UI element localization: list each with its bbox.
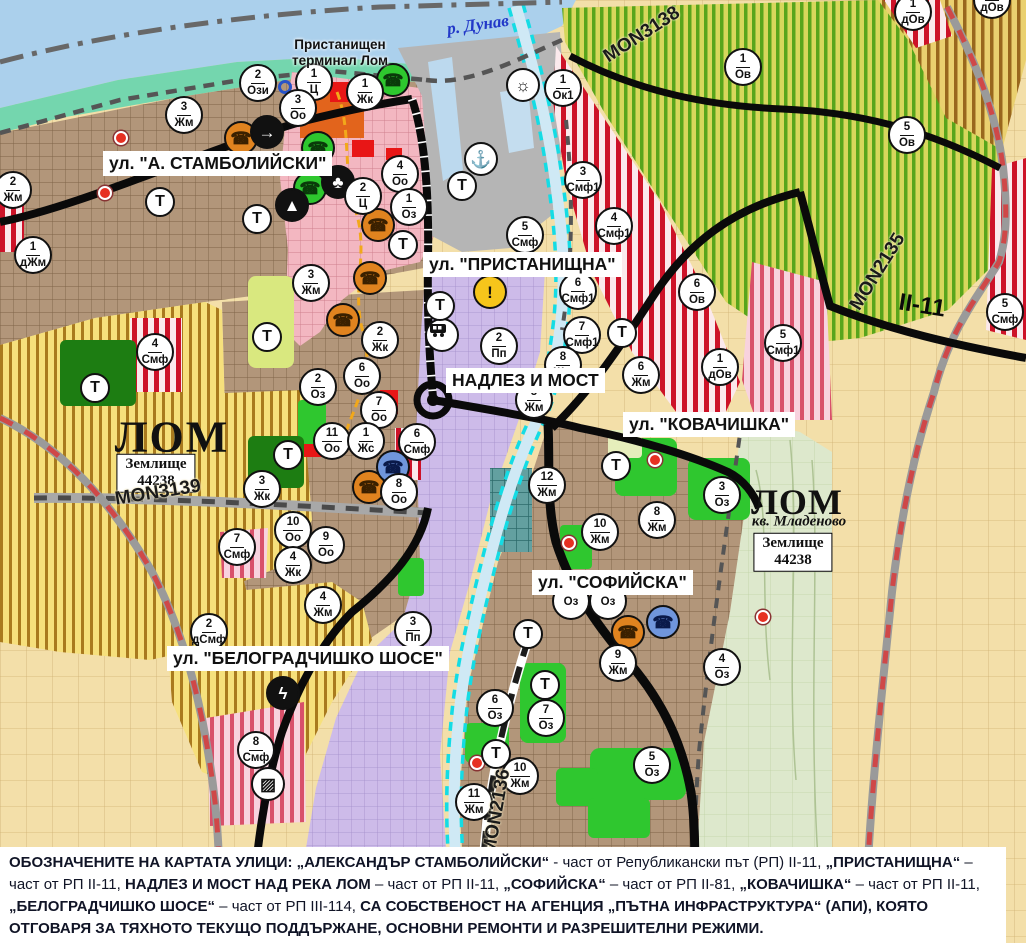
- zone-marker-code: Оо: [371, 411, 387, 424]
- culture-icon-blue: ☎: [646, 605, 680, 639]
- zone-marker-number: 6: [410, 428, 424, 442]
- zone-marker-3-Жк: 3Жк: [243, 470, 281, 508]
- zone-marker-3-Оо: 3Оо: [279, 89, 317, 127]
- zone-marker-11-Оо: 11Оо: [313, 422, 351, 460]
- zone-marker-number: 4: [393, 160, 407, 174]
- zone-marker-number: 10: [283, 516, 304, 530]
- zone-marker-1-дОв: 1дОв: [894, 0, 932, 31]
- street-label-sofiyska: ул. "СОФИЙСКА": [532, 570, 693, 595]
- zone-marker-6-Жм: 6Жм: [622, 356, 660, 394]
- zone-marker-number: 1: [307, 68, 321, 82]
- zone-marker-3-Жм: 3Жм: [292, 264, 330, 302]
- zone-marker-9-Жм: 9Жм: [599, 644, 637, 682]
- zone-marker-number: 1: [402, 193, 416, 207]
- zone-marker-9-Оо: 9Оо: [307, 526, 345, 564]
- legend-segment: – част от РП II-11,: [371, 876, 504, 893]
- zone-marker-number: 6: [571, 277, 585, 291]
- zone-marker-code: Пп: [491, 347, 506, 360]
- terrain-marker-t: Т: [388, 230, 418, 260]
- zone-marker-number: 6: [690, 278, 704, 292]
- zone-marker-number: 6: [355, 362, 369, 376]
- zone-marker-4-Оо: 4Оо: [381, 155, 419, 193]
- zone-marker-10-Жм: 10Жм: [581, 513, 619, 551]
- zone-marker-2-Оз: 2Оз: [299, 368, 337, 406]
- terrain-marker-t: Т: [145, 187, 175, 217]
- zone-marker-number: 9: [319, 531, 333, 545]
- terrain-marker-t: Т: [607, 318, 637, 348]
- culture-icon-orange: ☎: [353, 261, 387, 295]
- zone-marker-code: Смф1: [566, 181, 599, 194]
- zone-marker-number: 1: [713, 353, 727, 367]
- legend-segment: „СОФИЙСКА“: [503, 876, 605, 893]
- zone-marker-code: Оз: [539, 719, 554, 732]
- zone-marker-number: 2: [251, 69, 265, 83]
- zone-marker-code: Ов: [689, 293, 705, 306]
- zone-marker-number: 3: [291, 94, 305, 108]
- zone-marker-8-Жм: 8Жм: [638, 501, 676, 539]
- zone-marker-code: Ов: [735, 68, 751, 81]
- zone-marker-number: 11: [322, 427, 342, 441]
- zone-marker-number: 9: [611, 649, 625, 663]
- zone-marker-number: 2: [6, 176, 20, 190]
- zone-marker-code: Жм: [538, 486, 557, 499]
- zone-marker-code: дОв: [708, 368, 731, 381]
- zone-marker-code: Оз: [715, 496, 730, 509]
- zone-marker-number: 4: [607, 212, 621, 226]
- zone-marker-number: 4: [715, 653, 729, 667]
- zone-marker-5-Смф: 5Смф: [986, 293, 1024, 331]
- lightning-icon: ϟ: [266, 676, 300, 710]
- zone-marker-number: 6: [488, 694, 502, 708]
- zone-marker-1-дОв: 1дОв: [973, 0, 1011, 19]
- zone-marker-code: Оз: [601, 595, 616, 608]
- zone-marker-code: дОв: [901, 13, 924, 26]
- zone-marker-number: 8: [556, 351, 570, 365]
- port-terminal-label: Пристанищен терминал Лом: [292, 37, 388, 69]
- zone-marker-code: Ок1: [552, 89, 573, 102]
- terrain-marker-t: Т: [425, 291, 455, 321]
- zone-marker-code: Жм: [591, 533, 610, 546]
- zone-marker-2-Ц: 2Ц: [344, 177, 382, 215]
- legend-segment: – част от РП II-81,: [606, 876, 740, 893]
- zone-marker-1-дОв: 1дОв: [701, 348, 739, 386]
- red-dot-marker: [648, 453, 662, 467]
- zone-marker-code: Смф: [142, 353, 169, 366]
- zone-marker-code: Жк: [357, 93, 373, 106]
- terrain-marker-t: Т: [601, 451, 631, 481]
- zone-marker-number: 2: [202, 618, 216, 632]
- red-dot-marker: [756, 610, 770, 624]
- legend-segment: „КОВАЧИШКА“: [739, 876, 851, 893]
- zone-marker-code: Оо: [318, 546, 334, 559]
- map-annotations: ☎☎☎☎☎☎☎☎☎☎☎☼⚓→♣▲ϟ▨!2Ози1Ц1Жк3Оо3Жм2Жм1дЖ…: [0, 0, 1026, 943]
- zone-marker-2-Ози: 2Ози: [239, 64, 277, 102]
- zone-marker-12-Жм: 12Жм: [528, 466, 566, 504]
- zone-marker-number: 12: [537, 471, 558, 485]
- zone-marker-number: 5: [900, 121, 914, 135]
- zone-marker-code: Жм: [525, 401, 544, 414]
- zone-marker-7-Смф: 7Смф: [218, 528, 256, 566]
- zone-marker-code: Жм: [648, 521, 667, 534]
- zone-marker-code: Оо: [290, 109, 306, 122]
- zone-marker-code: Жм: [465, 803, 484, 816]
- zone-marker-code: Ози: [247, 84, 269, 97]
- zone-marker-number: 1: [359, 427, 373, 441]
- arrow-icon: →: [250, 115, 284, 149]
- zone-marker-number: 1: [358, 78, 372, 92]
- terrain-marker-t: Т: [80, 373, 110, 403]
- zone-marker-2-Жк: 2Жк: [361, 321, 399, 359]
- zone-marker-number: 7: [575, 321, 589, 335]
- zoning-map-canvas: ☎☎☎☎☎☎☎☎☎☎☎☼⚓→♣▲ϟ▨!2Ози1Ц1Жк3Оо3Жм2Жм1дЖ…: [0, 0, 1026, 943]
- zone-marker-code: Ов: [899, 136, 915, 149]
- zone-marker-number: 3: [406, 616, 420, 630]
- zone-marker-number: 8: [249, 736, 263, 750]
- zone-marker-code: Смф: [992, 313, 1019, 326]
- zone-marker-code: Смф1: [561, 292, 594, 305]
- zone-marker-code: Жс: [358, 442, 375, 455]
- zone-marker-code: Смф: [404, 443, 431, 456]
- zone-marker-code: дСмф: [192, 633, 226, 646]
- zone-marker-code: Оо: [324, 442, 340, 455]
- zone-marker-code: Оз: [402, 208, 417, 221]
- zone-marker-code: Смф1: [597, 227, 630, 240]
- zone-marker-code: Смф: [512, 236, 539, 249]
- terrain-marker-t: Т: [530, 670, 560, 700]
- zone-marker-5-Оз: 5Оз: [633, 746, 671, 784]
- zone-marker-number: 5: [998, 298, 1012, 312]
- zone-marker-1-Жс: 1Жс: [347, 422, 385, 460]
- red-dot-marker: [562, 536, 576, 550]
- street-label-pristanishtna: ул. "ПРИСТАНИЩНА": [423, 252, 622, 277]
- road-label-ii-11: II-11: [897, 289, 948, 324]
- zone-marker-number: 3: [255, 475, 269, 489]
- terrain-marker-t: Т: [481, 739, 511, 769]
- warning-icon: !: [473, 275, 507, 309]
- zone-marker-4-Смф: 4Смф: [136, 333, 174, 371]
- zone-marker-code: Смф: [224, 548, 251, 561]
- terrain-marker-t: Т: [242, 204, 272, 234]
- zone-marker-1-Ов: 1Ов: [724, 48, 762, 86]
- zone-marker-number: 7: [230, 533, 244, 547]
- zone-marker-code: Оо: [285, 531, 301, 544]
- zone-marker-3-Смф1: 3Смф1: [564, 161, 602, 199]
- zone-marker-number: 7: [539, 704, 553, 718]
- zone-marker-1-дЖм: 1дЖм: [14, 236, 52, 274]
- terrain-marker-t: Т: [513, 619, 543, 649]
- zone-marker-3-Жм: 3Жм: [165, 96, 203, 134]
- zone-marker-4-Жк: 4Жк: [274, 546, 312, 584]
- zone-marker-code: Жм: [4, 191, 23, 204]
- zone-marker-number: 7: [372, 396, 386, 410]
- zone-marker-number: 4: [316, 591, 330, 605]
- zone-marker-6-Оз: 6Оз: [476, 689, 514, 727]
- zone-marker-number: 4: [148, 338, 162, 352]
- zone-marker-number: 5: [518, 221, 532, 235]
- zone-marker-number: 5: [645, 751, 659, 765]
- zone-marker-6-Ов: 6Ов: [678, 273, 716, 311]
- zone-marker-number: 3: [576, 166, 590, 180]
- quarter-label-mladenovo: кв. Младеново: [752, 514, 846, 531]
- street-label-kovachishka: ул. "КОВАЧИШКА": [623, 412, 795, 437]
- zone-marker-number: 5: [776, 329, 790, 343]
- zone-marker-7-Оз: 7Оз: [527, 699, 565, 737]
- zone-marker-4-Оз: 4Оз: [703, 648, 741, 686]
- zone-marker-5-Смф: 5Смф: [506, 216, 544, 254]
- zone-marker-code: Жк: [372, 341, 388, 354]
- zone-marker-code: Оо: [354, 377, 370, 390]
- zone-marker-5-Смф1: 5Смф1: [764, 324, 802, 362]
- zone-marker-number: 2: [492, 332, 506, 346]
- zone-marker-number: 8: [650, 506, 664, 520]
- zone-marker-code: Жк: [285, 566, 301, 579]
- zone-marker-code: Жм: [302, 284, 321, 297]
- zone-marker-code: Жк: [254, 490, 270, 503]
- street-label-belogradchishko-shose: ул. "БЕЛОГРАДЧИШКО ШОСЕ": [167, 646, 449, 671]
- legend-note: ОБОЗНАЧЕНИТЕ НА КАРТАТА УЛИЦИ: „АЛЕКСАНД…: [0, 847, 1006, 943]
- zone-marker-code: Смф1: [766, 344, 799, 357]
- legend-segment: „БЕЛОГРАДЧИШКО ШОСЕ“: [9, 898, 215, 915]
- culture-icon-orange: ☎: [326, 303, 360, 337]
- zone-marker-code: Оз: [715, 668, 730, 681]
- zone-marker-2-Пп: 2Пп: [480, 327, 518, 365]
- zone-marker-code: дЖм: [20, 256, 46, 269]
- zone-marker-3-Пп: 3Пп: [394, 611, 432, 649]
- zone-marker-code: Оо: [392, 175, 408, 188]
- zone-marker-number: 10: [590, 518, 611, 532]
- zone-marker-1-Ок1: 1Ок1: [544, 69, 582, 107]
- zone-marker-6-Смф1: 6Смф1: [559, 272, 597, 310]
- zone-marker-code: Оз: [311, 388, 326, 401]
- zone-marker-code: Оз: [564, 595, 579, 608]
- zone-marker-8-Оо: 8Оо: [380, 473, 418, 511]
- anchor-icon: ⚓: [464, 142, 498, 176]
- legend-segment: НАДЛЕЗ И МОСТ НАД РЕКА ЛОМ: [125, 876, 371, 893]
- zone-marker-code: Оз: [488, 709, 503, 722]
- zone-marker-code: Жм: [175, 116, 194, 129]
- railway-crossing-icon: ▨: [251, 767, 285, 801]
- street-label-nadlez-i-most: НАДЛЕЗ И МОСТ: [446, 368, 605, 393]
- zone-marker-number: 3: [715, 481, 729, 495]
- sun-icon: ☼: [506, 68, 540, 102]
- zone-marker-4-Смф1: 4Смф1: [595, 207, 633, 245]
- zone-marker-code: Оз: [645, 766, 660, 779]
- river-danube-label: р. Дунав: [446, 11, 510, 39]
- zone-marker-5-Ов: 5Ов: [888, 116, 926, 154]
- zone-marker-number: 3: [177, 101, 191, 115]
- terrain-marker-t: Т: [273, 440, 303, 470]
- zone-marker-1-Жк: 1Жк: [346, 73, 384, 111]
- bus-station-icon: [425, 318, 459, 352]
- zone-marker-number: 11: [464, 788, 484, 802]
- zone-marker-code: Смф: [243, 751, 270, 764]
- zone-marker-8-Смф: 8Смф: [237, 731, 275, 769]
- red-dot-marker: [98, 186, 112, 200]
- zone-marker-code: дОв: [980, 1, 1003, 14]
- terrain-marker-t: Т: [447, 171, 477, 201]
- zone-marker-code: Пп: [405, 631, 420, 644]
- zone-marker-2-Жм: 2Жм: [0, 171, 32, 209]
- zone-marker-6-Оо: 6Оо: [343, 357, 381, 395]
- land-unit-44238-label-2: Землище 44238: [753, 533, 832, 572]
- zone-marker-code: Оо: [391, 493, 407, 506]
- zone-marker-number: 8: [392, 478, 406, 492]
- zone-marker-number: 1: [906, 0, 920, 13]
- zone-marker-number: 6: [634, 361, 648, 375]
- zone-marker-number: 2: [356, 182, 370, 196]
- zone-marker-code: Жм: [609, 664, 628, 677]
- zone-marker-number: 1: [736, 53, 750, 67]
- zone-marker-number: 1: [556, 74, 570, 88]
- legend-segment: „ПРИСТАНИЩНА“: [826, 854, 961, 871]
- legend-segment: - част от Републикански път (РП) II-11,: [549, 854, 825, 871]
- terrain-marker-t: Т: [252, 322, 282, 352]
- zone-marker-code: Жм: [632, 376, 651, 389]
- mound-icon: ▲: [275, 188, 309, 222]
- street-label-stamboliyski: ул. "А. СТАМБОЛИЙСКИ": [103, 151, 332, 176]
- zone-marker-number: 3: [304, 269, 318, 283]
- zone-marker-4-Жм: 4Жм: [304, 586, 342, 624]
- zone-marker-number: 1: [26, 241, 40, 255]
- legend-segment: – част от РП II-11,: [851, 876, 979, 893]
- zone-marker-6-Смф: 6Смф: [398, 423, 436, 461]
- zone-marker-1-Оз: 1Оз: [390, 188, 428, 226]
- red-dot-marker: [114, 131, 128, 145]
- zone-marker-3-Оз: 3Оз: [703, 476, 741, 514]
- legend-segment: ОБОЗНАЧЕНИТЕ НА КАРТАТА УЛИЦИ: „АЛЕКСАНД…: [9, 854, 549, 871]
- zone-marker-number: 2: [311, 373, 325, 387]
- zone-marker-number: 2: [373, 326, 387, 340]
- legend-segment: – част от РП III-114,: [215, 898, 360, 915]
- zone-marker-code: Жм: [314, 606, 333, 619]
- zone-marker-number: 4: [286, 551, 300, 565]
- road-label-mon3138: MON3138: [600, 2, 685, 68]
- zone-marker-code: Ц: [359, 197, 367, 210]
